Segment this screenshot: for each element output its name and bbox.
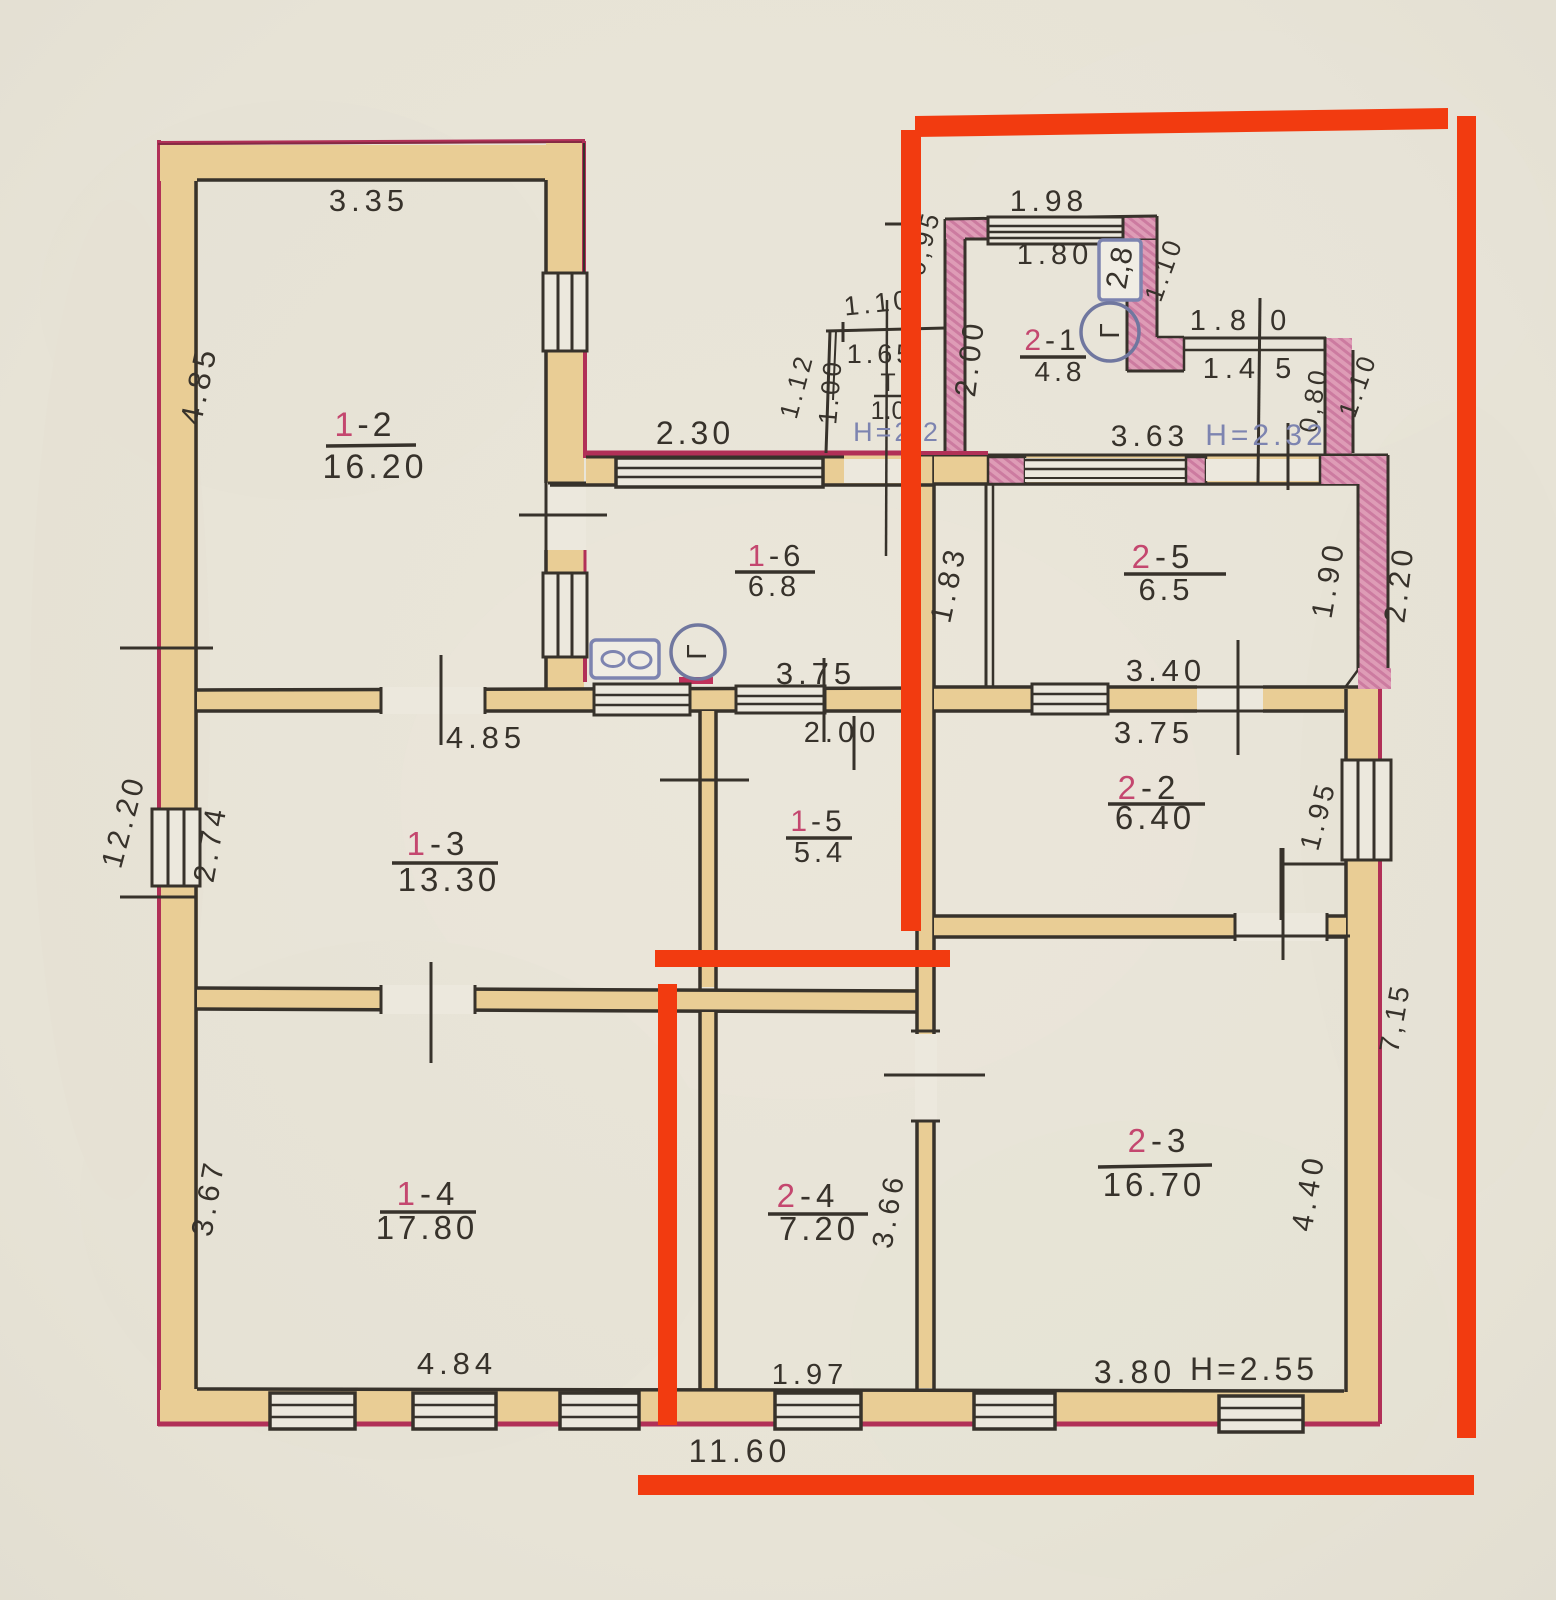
svg-text:16.70: 16.70 xyxy=(1103,1166,1206,1203)
svg-text:4.85: 4.85 xyxy=(446,720,526,755)
svg-text:2-5: 2-5 xyxy=(1132,538,1195,575)
svg-text:4.84: 4.84 xyxy=(417,1346,497,1381)
svg-text:1.8 0: 1.8 0 xyxy=(1190,305,1295,337)
svg-text:13.30: 13.30 xyxy=(398,861,501,898)
svg-text:2-3: 2-3 xyxy=(1128,1122,1191,1159)
svg-text:1.80: 1.80 xyxy=(1017,239,1093,271)
svg-text:1-4: 1-4 xyxy=(397,1175,460,1212)
svg-text:5.4: 5.4 xyxy=(794,837,846,869)
svg-text:2-4: 2-4 xyxy=(777,1177,840,1214)
svg-text:7.20: 7.20 xyxy=(779,1210,859,1247)
svg-text:Г: Г xyxy=(681,644,712,659)
svg-text:3.40: 3.40 xyxy=(1126,653,1206,688)
svg-text:17.80: 17.80 xyxy=(376,1209,479,1246)
svg-text:1-2: 1-2 xyxy=(334,406,395,444)
svg-text:3.80: 3.80 xyxy=(1094,1354,1176,1390)
svg-text:2.30: 2.30 xyxy=(656,415,734,451)
svg-text:H=2.32: H=2.32 xyxy=(1205,419,1327,452)
svg-text:4.8: 4.8 xyxy=(1035,356,1086,387)
svg-text:3.75: 3.75 xyxy=(1114,715,1194,750)
svg-text:3.35: 3.35 xyxy=(329,183,409,218)
svg-text:3.63: 3.63 xyxy=(1111,420,1189,453)
svg-text:3.75: 3.75 xyxy=(776,656,856,691)
svg-text:11.60: 11.60 xyxy=(689,1433,792,1469)
svg-text:2.00: 2.00 xyxy=(804,717,880,749)
svg-text:1.98: 1.98 xyxy=(1010,185,1088,218)
svg-text:1-3: 1-3 xyxy=(407,825,470,862)
svg-text:6.5: 6.5 xyxy=(1138,572,1193,607)
svg-text:2-1: 2-1 xyxy=(1024,324,1079,357)
svg-text:16.20: 16.20 xyxy=(322,448,427,486)
svg-text:1-6: 1-6 xyxy=(748,538,805,573)
svg-text:6.40: 6.40 xyxy=(1115,799,1195,836)
svg-text:Г: Г xyxy=(1094,323,1125,338)
svg-text:H=2.55: H=2.55 xyxy=(1190,1351,1318,1387)
svg-text:H=2.2: H=2.2 xyxy=(853,417,941,447)
svg-text:6.8: 6.8 xyxy=(748,571,800,603)
svg-text:1.97: 1.97 xyxy=(772,1359,848,1391)
svg-text:1.4 5: 1.4 5 xyxy=(1203,353,1298,385)
svg-text:T: T xyxy=(880,369,895,397)
svg-text:1-5: 1-5 xyxy=(790,805,845,838)
svg-text:1.00: 1.00 xyxy=(812,357,848,426)
